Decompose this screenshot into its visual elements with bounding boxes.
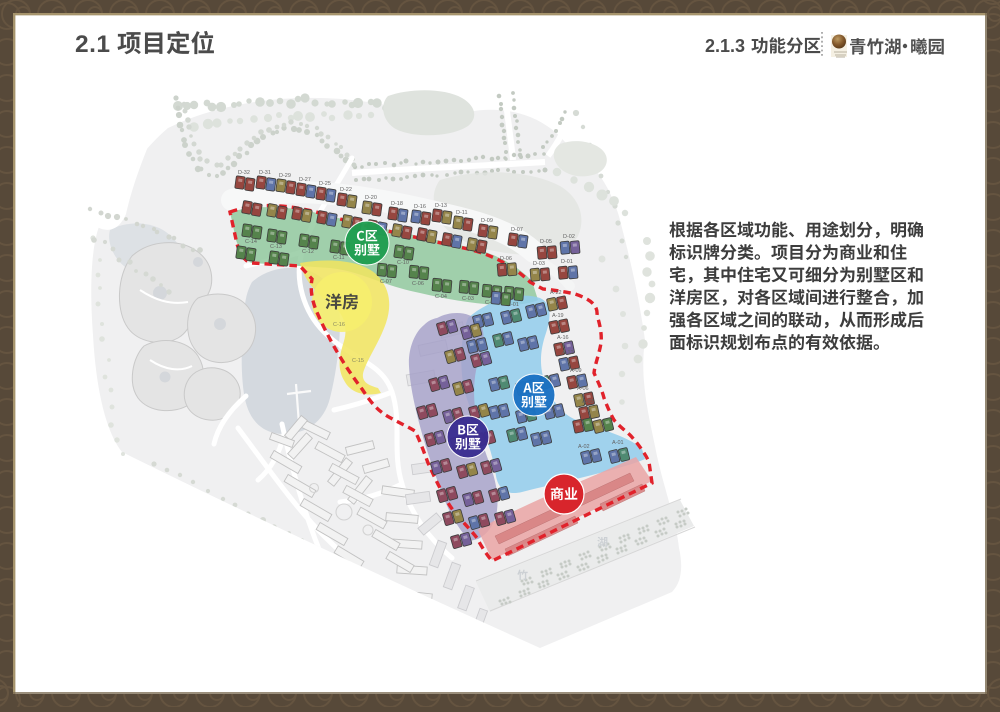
svg-text:D-06: D-06 [500, 256, 512, 262]
svg-text:D-22: D-22 [340, 187, 352, 193]
svg-text:A-03: A-03 [582, 399, 594, 405]
svg-text:D-03: D-03 [533, 261, 545, 267]
svg-text:C-13: C-13 [270, 244, 282, 250]
svg-text:A-12: A-12 [562, 350, 574, 356]
svg-text:C-15: C-15 [352, 358, 364, 364]
svg-text:D-02: D-02 [563, 234, 575, 240]
svg-text:D-27: D-27 [299, 177, 311, 183]
svg-text:D-09: D-09 [481, 218, 493, 224]
svg-text:A-09: A-09 [570, 368, 582, 374]
svg-text:D-16: D-16 [414, 204, 426, 210]
svg-text:A-02: A-02 [578, 444, 590, 450]
svg-text:D-18: D-18 [391, 201, 403, 207]
svg-text:A-01: A-01 [612, 440, 624, 446]
svg-text:D-31: D-31 [259, 170, 271, 176]
svg-text:A-19: A-19 [552, 313, 564, 319]
svg-text:2.1: 2.1 [75, 31, 111, 58]
svg-text:A-06: A-06 [577, 386, 589, 392]
svg-text:C-12: C-12 [302, 249, 314, 255]
svg-text:2.1.3: 2.1.3 [705, 36, 745, 56]
svg-text:C-16: C-16 [333, 322, 345, 328]
svg-text:C-10: C-10 [397, 260, 409, 266]
svg-text:D-13: D-13 [435, 203, 447, 209]
svg-text:D-29: D-29 [279, 173, 291, 179]
svg-text:C-14: C-14 [245, 239, 257, 245]
svg-text:D-01: D-01 [561, 259, 573, 265]
svg-text:D-07: D-07 [511, 227, 523, 233]
svg-text:C-03: C-03 [462, 296, 474, 302]
svg-text:D-25: D-25 [319, 181, 331, 187]
svg-text:C-04: C-04 [435, 294, 447, 300]
svg-text:D-11: D-11 [456, 210, 468, 216]
svg-text:C-07: C-07 [380, 279, 392, 285]
svg-text:C-06: C-06 [412, 281, 424, 287]
svg-text:A-22: A-22 [550, 290, 562, 296]
svg-text:D-05: D-05 [540, 239, 552, 245]
svg-text:C-11: C-11 [333, 255, 345, 261]
svg-text:D-32: D-32 [238, 170, 250, 176]
svg-text:D-20: D-20 [365, 195, 377, 201]
svg-text:A-16: A-16 [557, 335, 569, 341]
